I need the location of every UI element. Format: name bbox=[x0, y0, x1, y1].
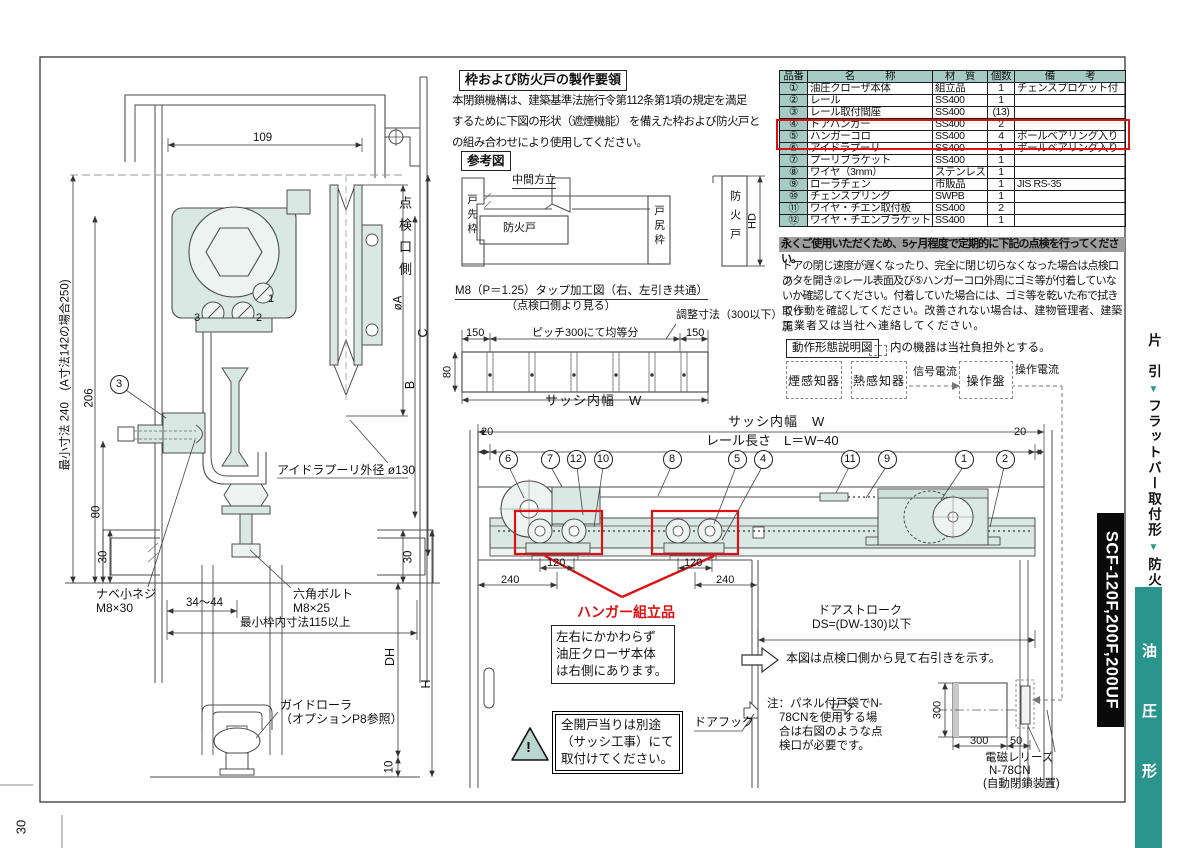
model-number: SCF-120F,200F,200UF bbox=[1101, 531, 1120, 709]
fabrication-title: 枠および防火戸の製作要領 bbox=[459, 70, 627, 91]
dim-109: 109 bbox=[253, 132, 272, 145]
callout-12: 12 bbox=[567, 450, 586, 469]
sidebar-breadcrumb: 片 引▼フラットバー取付形▼防火扉▼ bbox=[1143, 333, 1163, 623]
model-banner: SCF-120F,200F,200UF bbox=[1097, 513, 1124, 727]
table-row: ⑪ワイヤ・チエン取付板SS4002 bbox=[780, 203, 1126, 215]
dim-30-right: 30 bbox=[402, 551, 415, 564]
callout-3: 3 bbox=[110, 375, 129, 394]
screw-1-label: 1 bbox=[268, 293, 274, 306]
dim-dh: DH bbox=[383, 648, 397, 666]
breadcrumb-triangle-icon: ▼ bbox=[1148, 542, 1159, 553]
callout-5: 5 bbox=[728, 450, 747, 469]
left-drawing bbox=[65, 77, 440, 777]
col-name: 名 称 bbox=[808, 71, 933, 83]
dim-10: 10 bbox=[383, 761, 396, 774]
catalog-page: 109 点検口側 øA C B 最小寸法 240 (A寸法142の場合250) … bbox=[0, 0, 1200, 848]
warn-line-2: （サッシ工事）にて bbox=[561, 734, 674, 751]
warning-exclamation: ! bbox=[526, 739, 531, 756]
door-hook-label: ドアフック bbox=[694, 716, 754, 730]
reference-figure-label: 参考図 bbox=[461, 151, 511, 171]
dim-34-44: 34～44 bbox=[186, 597, 223, 610]
direction-note: 本図は点検口側から見て右引きを示す。 bbox=[786, 652, 1001, 666]
inspection-side-label: 点検口側 bbox=[396, 196, 411, 284]
pitch-label: ピッチ300にて均等分 bbox=[532, 327, 638, 340]
heat-detector-box: 熱感知器 bbox=[851, 361, 907, 399]
dim-h: H bbox=[419, 679, 433, 688]
mullion-label: 中間方立 bbox=[512, 174, 556, 189]
callout-8: 8 bbox=[663, 450, 682, 469]
dim-c: C bbox=[416, 328, 430, 337]
operation-title: 動作形態説明図 bbox=[786, 339, 879, 358]
tap-title: M8（P＝1.25）タップ加工図（右、左引き共通） bbox=[455, 285, 708, 300]
dim-dia-a: øA bbox=[392, 296, 405, 311]
note-line-3: は右側にあります。 bbox=[556, 663, 670, 680]
dim-300-vertical: 300 bbox=[932, 701, 945, 719]
rail-length-label: レール長さ L＝W−40 bbox=[706, 434, 839, 449]
hex-bolt-label-1: 六角ボルト bbox=[293, 588, 353, 602]
callout-4: 4 bbox=[754, 450, 773, 469]
operation-note: 内の機器は当社負担外とする。 bbox=[890, 342, 1051, 355]
dim-150-left: 150 bbox=[466, 327, 484, 340]
dim-300-horizontal: 300 bbox=[970, 735, 988, 748]
callout-9: 9 bbox=[878, 450, 897, 469]
pocket-note-line-3: 合は右図のような点 bbox=[779, 726, 883, 739]
dim-50: 50 bbox=[1010, 735, 1022, 748]
table-row: ③レール取付間座SS400(13) bbox=[780, 107, 1126, 119]
callout-6: 6 bbox=[499, 450, 518, 469]
control-panel-box: 操作盤 bbox=[959, 361, 1013, 399]
tap-subtitle: （点検口側より見る） bbox=[506, 300, 616, 313]
pocket-note-line-4: 検口が必要です。 bbox=[779, 740, 870, 753]
dim-hd: HD bbox=[747, 213, 760, 229]
warn-line-3: 取付けてください。 bbox=[561, 751, 674, 768]
release-label-3: (自動閉鎖装置) bbox=[983, 778, 1060, 791]
guide-roller-label-1: ガイドローラ bbox=[280, 699, 352, 713]
dim-b: B bbox=[403, 381, 417, 389]
table-row: ⑨ローラチェン市販品1JIS RS-35 bbox=[780, 179, 1126, 191]
table-highlight-box bbox=[776, 119, 1130, 150]
door-stop-warning-box: 全開戸当りは別途 （サッシ工事）にて 取付けてください。 bbox=[552, 711, 683, 774]
hex-bolt-label-2: M8×25 bbox=[293, 602, 330, 616]
dim-120-right: 120 bbox=[684, 557, 702, 570]
callout-1: 1 bbox=[955, 450, 974, 469]
pocket-note-line-2: 78CNを使用する場 bbox=[779, 712, 877, 725]
release-label-1: 電磁レリーズ bbox=[985, 752, 1053, 765]
signal-current-label: 信号電流 bbox=[913, 366, 957, 379]
table-row: ⑦プーリブラケットSS4001 bbox=[780, 155, 1126, 167]
dim-150-right: 150 bbox=[686, 327, 704, 340]
pocket-note-line-1: 注：パネル付戸袋でN- bbox=[767, 698, 883, 711]
fabrication-line-1: 本閉鎖機構は、建築基準法施行令第112条第1項の規定を満足 bbox=[452, 95, 747, 108]
reference-diagram bbox=[462, 176, 765, 266]
table-row: ⑩チェンスプリングSWPB1 bbox=[780, 191, 1126, 203]
dim-20-left: 20 bbox=[481, 426, 493, 439]
callout-2: 2 bbox=[996, 450, 1015, 469]
maintenance-header: 永くご使用いただくため、5ヶ月程度で定期的に下記の点検を行ってください。 bbox=[779, 237, 1125, 252]
table-row: ①油圧クローザ本体組立品1チェンスプロケット付 bbox=[780, 83, 1126, 95]
breadcrumb-item-flatbar: フラットバー取付形 bbox=[1146, 399, 1161, 539]
callout-7: 7 bbox=[541, 450, 560, 469]
dim-120-left: 120 bbox=[547, 557, 565, 570]
idler-pulley-label: アイドラプーリ外径 ø130 bbox=[277, 464, 415, 478]
table-row: ②レールSS4001 bbox=[780, 95, 1126, 107]
maintenance-line-2: フタを開き②レール表面及び⑤ハンガーコロ外周にゴミ等が付着していな bbox=[782, 272, 1126, 288]
release-label-2: N-78CN bbox=[989, 765, 1031, 778]
pan-screw-label-1: ナベ小ネジ bbox=[96, 588, 156, 602]
sash-width-label: サッシ内幅 W bbox=[728, 415, 825, 430]
table-header-row: 品番 名 称 材 質 個数 備 考 bbox=[780, 71, 1126, 83]
col-qty: 個数 bbox=[988, 71, 1015, 83]
col-note: 備 考 bbox=[1015, 71, 1126, 83]
pan-screw-label-2: M8×30 bbox=[96, 602, 133, 616]
dashed-box-glyph bbox=[869, 345, 887, 356]
maintenance-line-5: 工業者又は当社へ連絡してください。 bbox=[782, 317, 1126, 333]
door-stroke-label-2: DS=(DW-130)以下 bbox=[812, 618, 911, 632]
callout-11: 11 bbox=[841, 450, 860, 469]
callout-10: 10 bbox=[594, 450, 613, 469]
series-banner: 油 圧 形 bbox=[1135, 587, 1162, 848]
door-stroke-label-1: ドアストローク bbox=[818, 604, 902, 618]
screw-2-label: 2 bbox=[256, 312, 262, 325]
fire-door-right-label: 防火戸 bbox=[728, 190, 741, 247]
front-jamb-label: 戸先枠 bbox=[466, 194, 478, 238]
fabrication-line-2: するために下図の形状（遮煙機能） を備えた枠および防火戸と bbox=[452, 116, 760, 129]
rear-jamb-label: 戸尻枠 bbox=[653, 205, 665, 249]
col-material: 材 質 bbox=[933, 71, 988, 83]
guide-roller-label-2: （オプションP8参照） bbox=[280, 713, 403, 727]
adjust-dim-label: 調整寸法（300以下） bbox=[676, 309, 782, 322]
min-frame-dim: 最小枠内寸法115以上 bbox=[240, 617, 350, 630]
breadcrumb-triangle-icon: ▼ bbox=[1148, 384, 1159, 395]
note-line-2: 油圧クローザ本体 bbox=[556, 646, 670, 663]
fabrication-line-3: の組み合わせにより使用してください。 bbox=[452, 137, 647, 150]
fire-door-label: 防火戸 bbox=[503, 222, 536, 235]
min-dim-label: 最小寸法 240 (A寸法142の場合250) bbox=[59, 279, 72, 470]
col-no: 品番 bbox=[780, 71, 808, 83]
table-row: ⑧ワイヤ（3mm）ステンレス1 bbox=[780, 167, 1126, 179]
smoke-detector-box: 煙感知器 bbox=[786, 361, 842, 399]
closer-position-note: 左右にかかわらず 油圧クローザ本体 は右側にあります。 bbox=[551, 625, 675, 684]
breadcrumb-item-katabiki: 片 引 bbox=[1146, 333, 1161, 380]
dim-30-left: 30 bbox=[97, 551, 110, 564]
hanger-assembly-label: ハンガー組立品 bbox=[577, 604, 675, 620]
page-number: 30 bbox=[15, 820, 30, 834]
table-row: ⑫ワイヤ・チエンブラケットSS4001 bbox=[780, 215, 1126, 227]
dim-80-tap: 80 bbox=[442, 366, 455, 378]
dim-80: 80 bbox=[90, 506, 103, 519]
dim-240-left: 240 bbox=[501, 574, 519, 587]
dim-20-right: 20 bbox=[1014, 426, 1026, 439]
warn-line-1: 全開戸当りは別途 bbox=[561, 717, 674, 734]
control-current-label: 操作電流 bbox=[1015, 364, 1059, 377]
dim-206: 206 bbox=[83, 388, 96, 407]
dim-240-right: 240 bbox=[716, 574, 734, 587]
screw-3-label: 3 bbox=[194, 312, 200, 325]
series-name: 油 圧 形 bbox=[1138, 643, 1159, 792]
note-line-1: 左右にかかわらず bbox=[556, 629, 670, 646]
sash-width-tap-label: サッシ内幅 W bbox=[545, 394, 642, 409]
